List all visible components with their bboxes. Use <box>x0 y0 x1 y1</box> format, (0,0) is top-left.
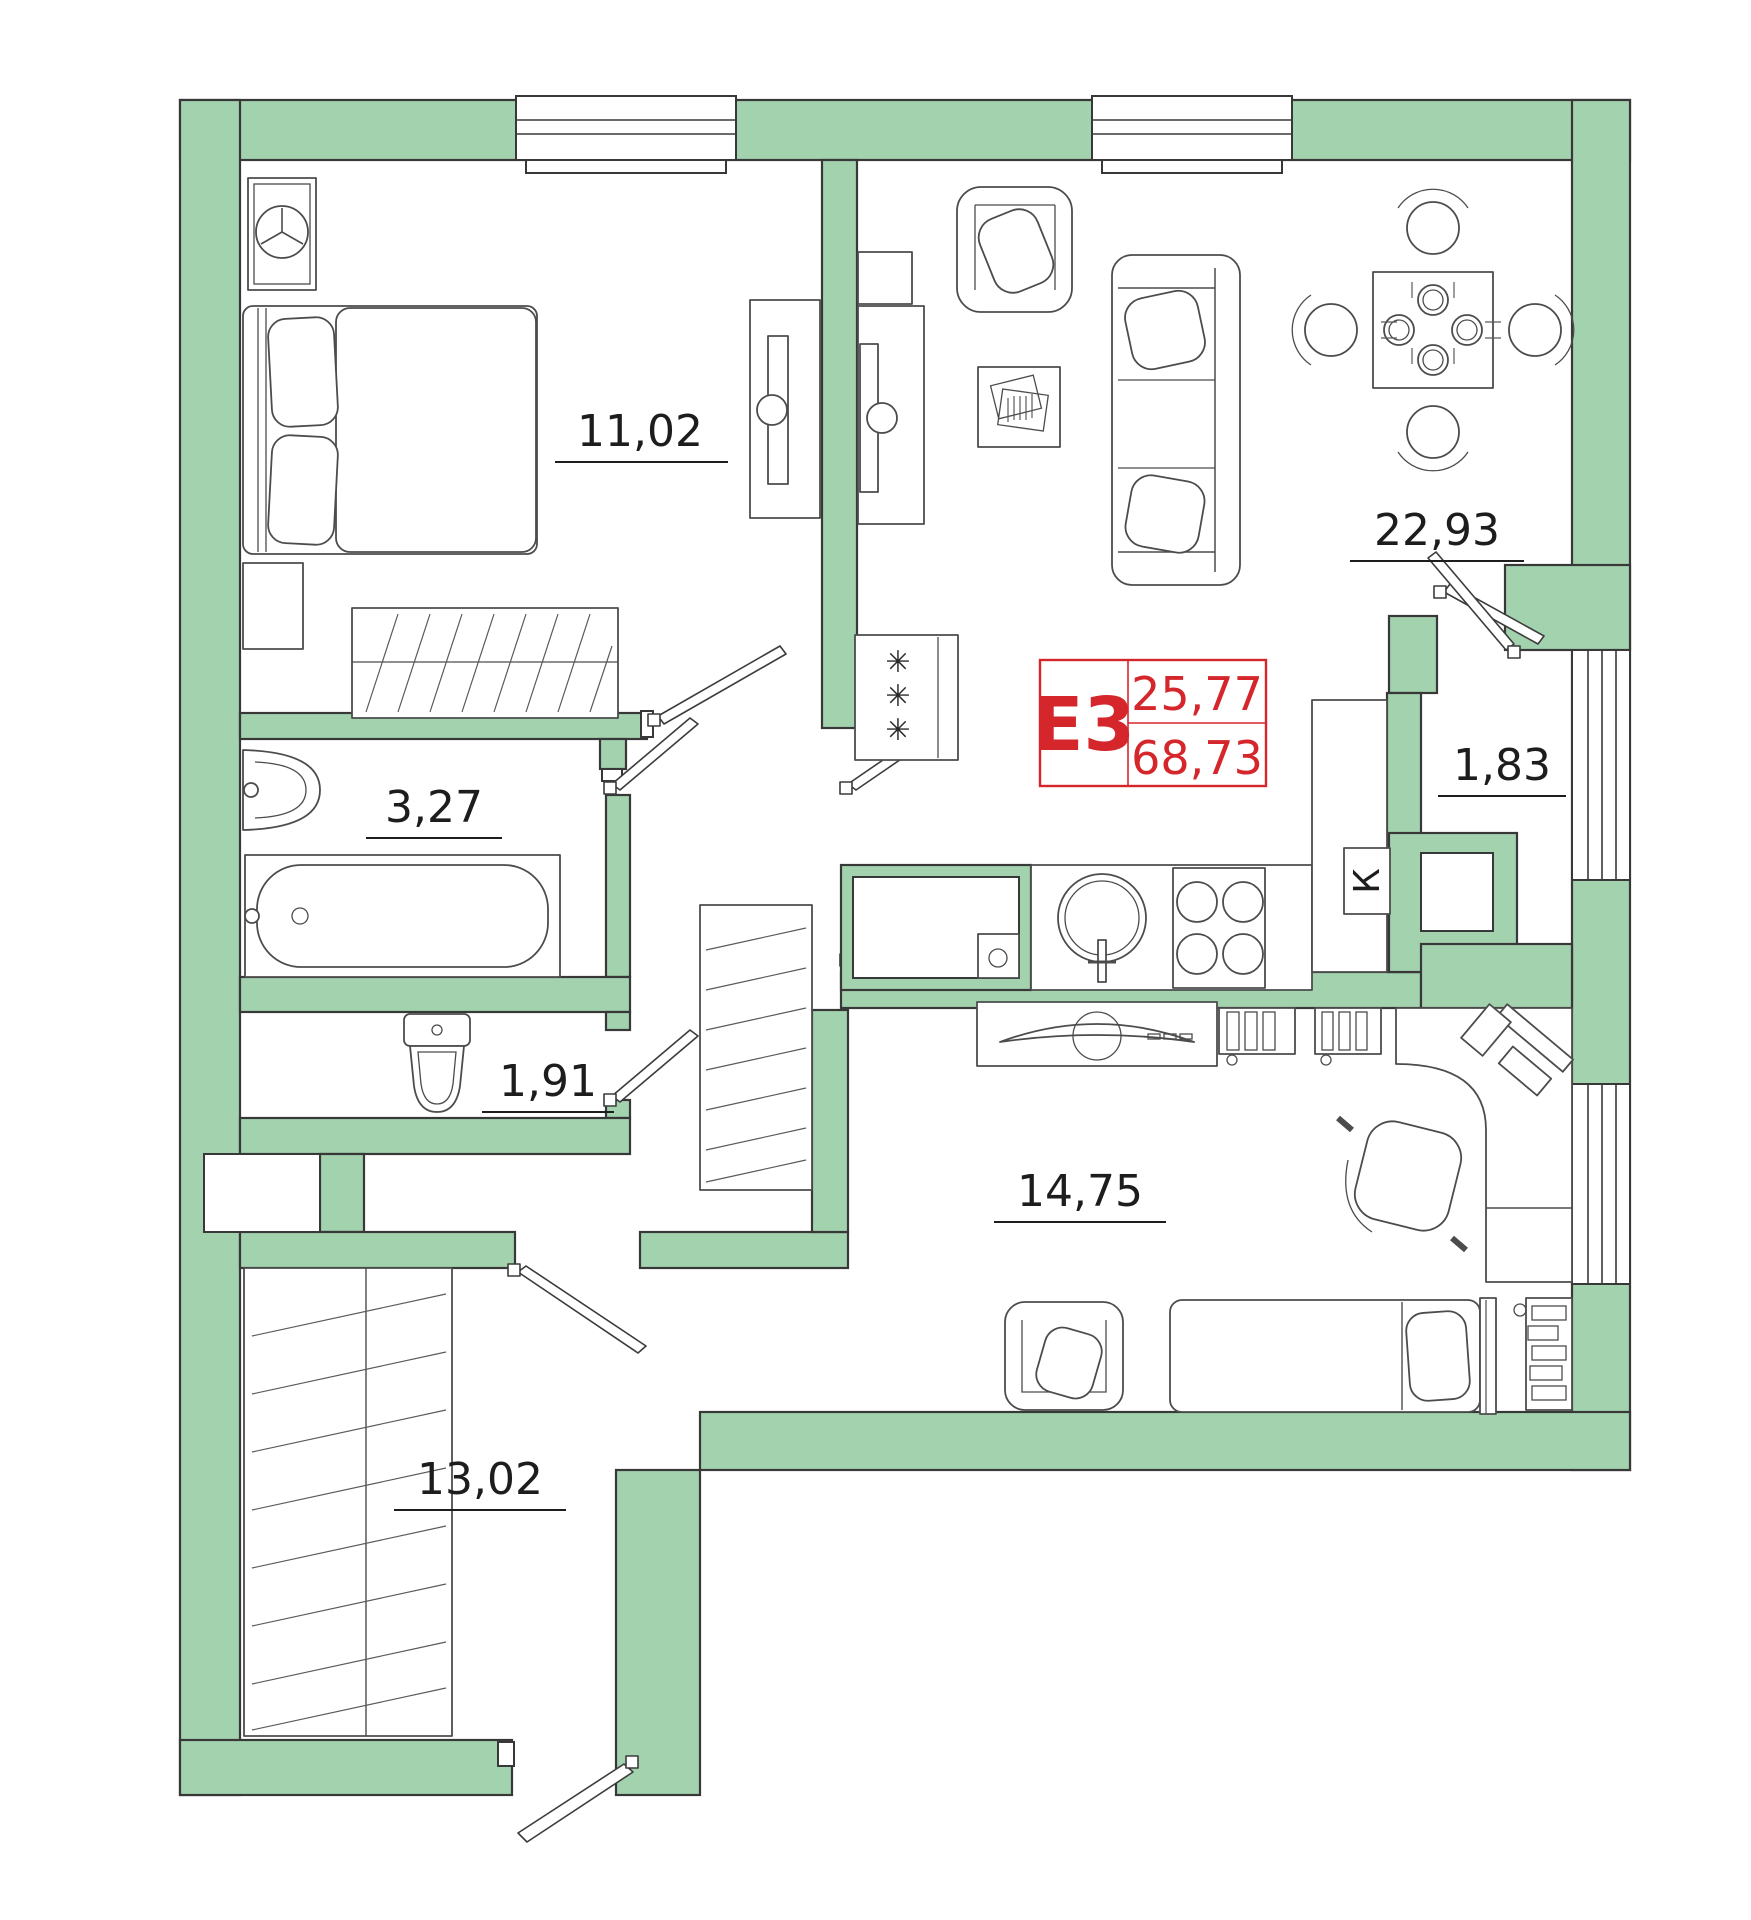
bathtub-icon <box>245 855 560 977</box>
radiator-icon <box>1219 1008 1295 1065</box>
door-wc <box>604 1030 698 1106</box>
area-label-bedroom: 11,02 <box>577 406 703 457</box>
tv-stand-living-icon <box>858 252 924 524</box>
wall-wc-bottom <box>240 1118 630 1154</box>
wall-niche <box>204 1154 320 1232</box>
kitchen-sink-icon <box>1031 865 1312 990</box>
room-entrance-hall: 13,02 <box>244 1268 566 1736</box>
area-label-bedroom2: 14,75 <box>1017 1166 1143 1217</box>
single-bed-icon <box>1170 1298 1496 1414</box>
wall-bottom-right <box>700 1412 1630 1470</box>
area-label-wc: 1,91 <box>499 1056 597 1107</box>
stove-icon <box>1173 868 1265 988</box>
door-bedroom <box>648 646 786 726</box>
snowflake-icon: ✳ <box>885 713 910 748</box>
wall-hall-top-left <box>240 1232 515 1268</box>
wall-balcony-jog <box>1505 565 1630 650</box>
double-bed-icon <box>243 306 537 554</box>
wall-niche-side <box>320 1154 364 1232</box>
radiator-icon <box>1315 1008 1381 1065</box>
toilet-icon <box>404 1014 470 1112</box>
duct-label: К <box>1347 868 1388 894</box>
armchair2-icon <box>1005 1302 1123 1410</box>
wall-bath-bottom <box>240 977 630 1012</box>
wall-hall-top-right <box>640 1232 848 1268</box>
fridge-icon: ✳ ✳ ✳ <box>855 635 958 760</box>
wall-hallway-block <box>1389 616 1437 693</box>
floorplan-drawing: 11,02 <box>0 0 1751 1920</box>
ventilation-unit-icon <box>248 178 316 290</box>
wall-top <box>180 100 1630 160</box>
room-bathroom: 3,27 <box>243 750 560 977</box>
wall-bath-right <box>606 795 630 977</box>
wall-bedroom-living <box>822 160 857 728</box>
wardrobe-bedroom-icon <box>352 608 618 718</box>
window-bedroom <box>516 96 736 173</box>
wall-wc-jamb-top <box>606 1012 630 1030</box>
wall-stub-bedroom <box>600 739 626 769</box>
tv-console-icon <box>977 1002 1217 1066</box>
snowflake-icon: ✳ <box>885 679 910 714</box>
wall-bottom-left <box>180 1740 512 1795</box>
area-label-entrance-hall: 13,02 <box>417 1454 543 1505</box>
area-label-bathroom: 3,27 <box>385 782 483 833</box>
door-entrance <box>518 1756 638 1842</box>
jamb-cap-3 <box>498 1742 514 1766</box>
wall-entrance-pier <box>616 1470 700 1795</box>
office-chair-icon <box>1338 1116 1467 1250</box>
window-living <box>1092 96 1292 173</box>
window-balcony-door <box>1572 650 1630 880</box>
kitchen-cabinets-icon <box>841 865 1031 990</box>
coffee-table-icon <box>978 367 1060 447</box>
duct-shaft <box>1421 853 1493 931</box>
nightstand-icon <box>243 563 303 649</box>
room-bedroom: 11,02 <box>243 178 820 718</box>
wall-left <box>180 100 240 1795</box>
window-bedroom2 <box>1572 1084 1630 1284</box>
unit-total-area: 68,73 <box>1131 731 1263 785</box>
floorplan-page: 11,02 <box>0 0 1751 1920</box>
kitchen-counter-corner: К <box>1312 700 1390 972</box>
snowflake-icon: ✳ <box>885 645 910 680</box>
sofa-icon <box>1112 255 1240 585</box>
door-hall-13 <box>508 1264 646 1353</box>
room-hallway-small: 1,83 <box>1438 740 1566 796</box>
tv-dresser-bedroom-icon <box>750 300 820 518</box>
hall-wardrobe-icon <box>700 905 812 1190</box>
sink-icon <box>243 750 320 830</box>
wall-hallway-south <box>1421 944 1572 1008</box>
armchair-living-icon <box>957 187 1072 312</box>
bookshelf-icon <box>1514 1298 1572 1410</box>
wall-corridor-stub <box>812 1010 848 1232</box>
room-wc: 1,91 <box>404 1014 614 1112</box>
unit-info-box: Е3 25,77 68,73 <box>1033 660 1266 786</box>
area-label-living: 22,93 <box>1374 505 1500 556</box>
area-label-hallway-small: 1,83 <box>1453 740 1551 791</box>
unit-label: Е3 <box>1033 682 1135 768</box>
dining-set-icon <box>1292 189 1574 471</box>
unit-living-area: 25,77 <box>1131 667 1263 721</box>
